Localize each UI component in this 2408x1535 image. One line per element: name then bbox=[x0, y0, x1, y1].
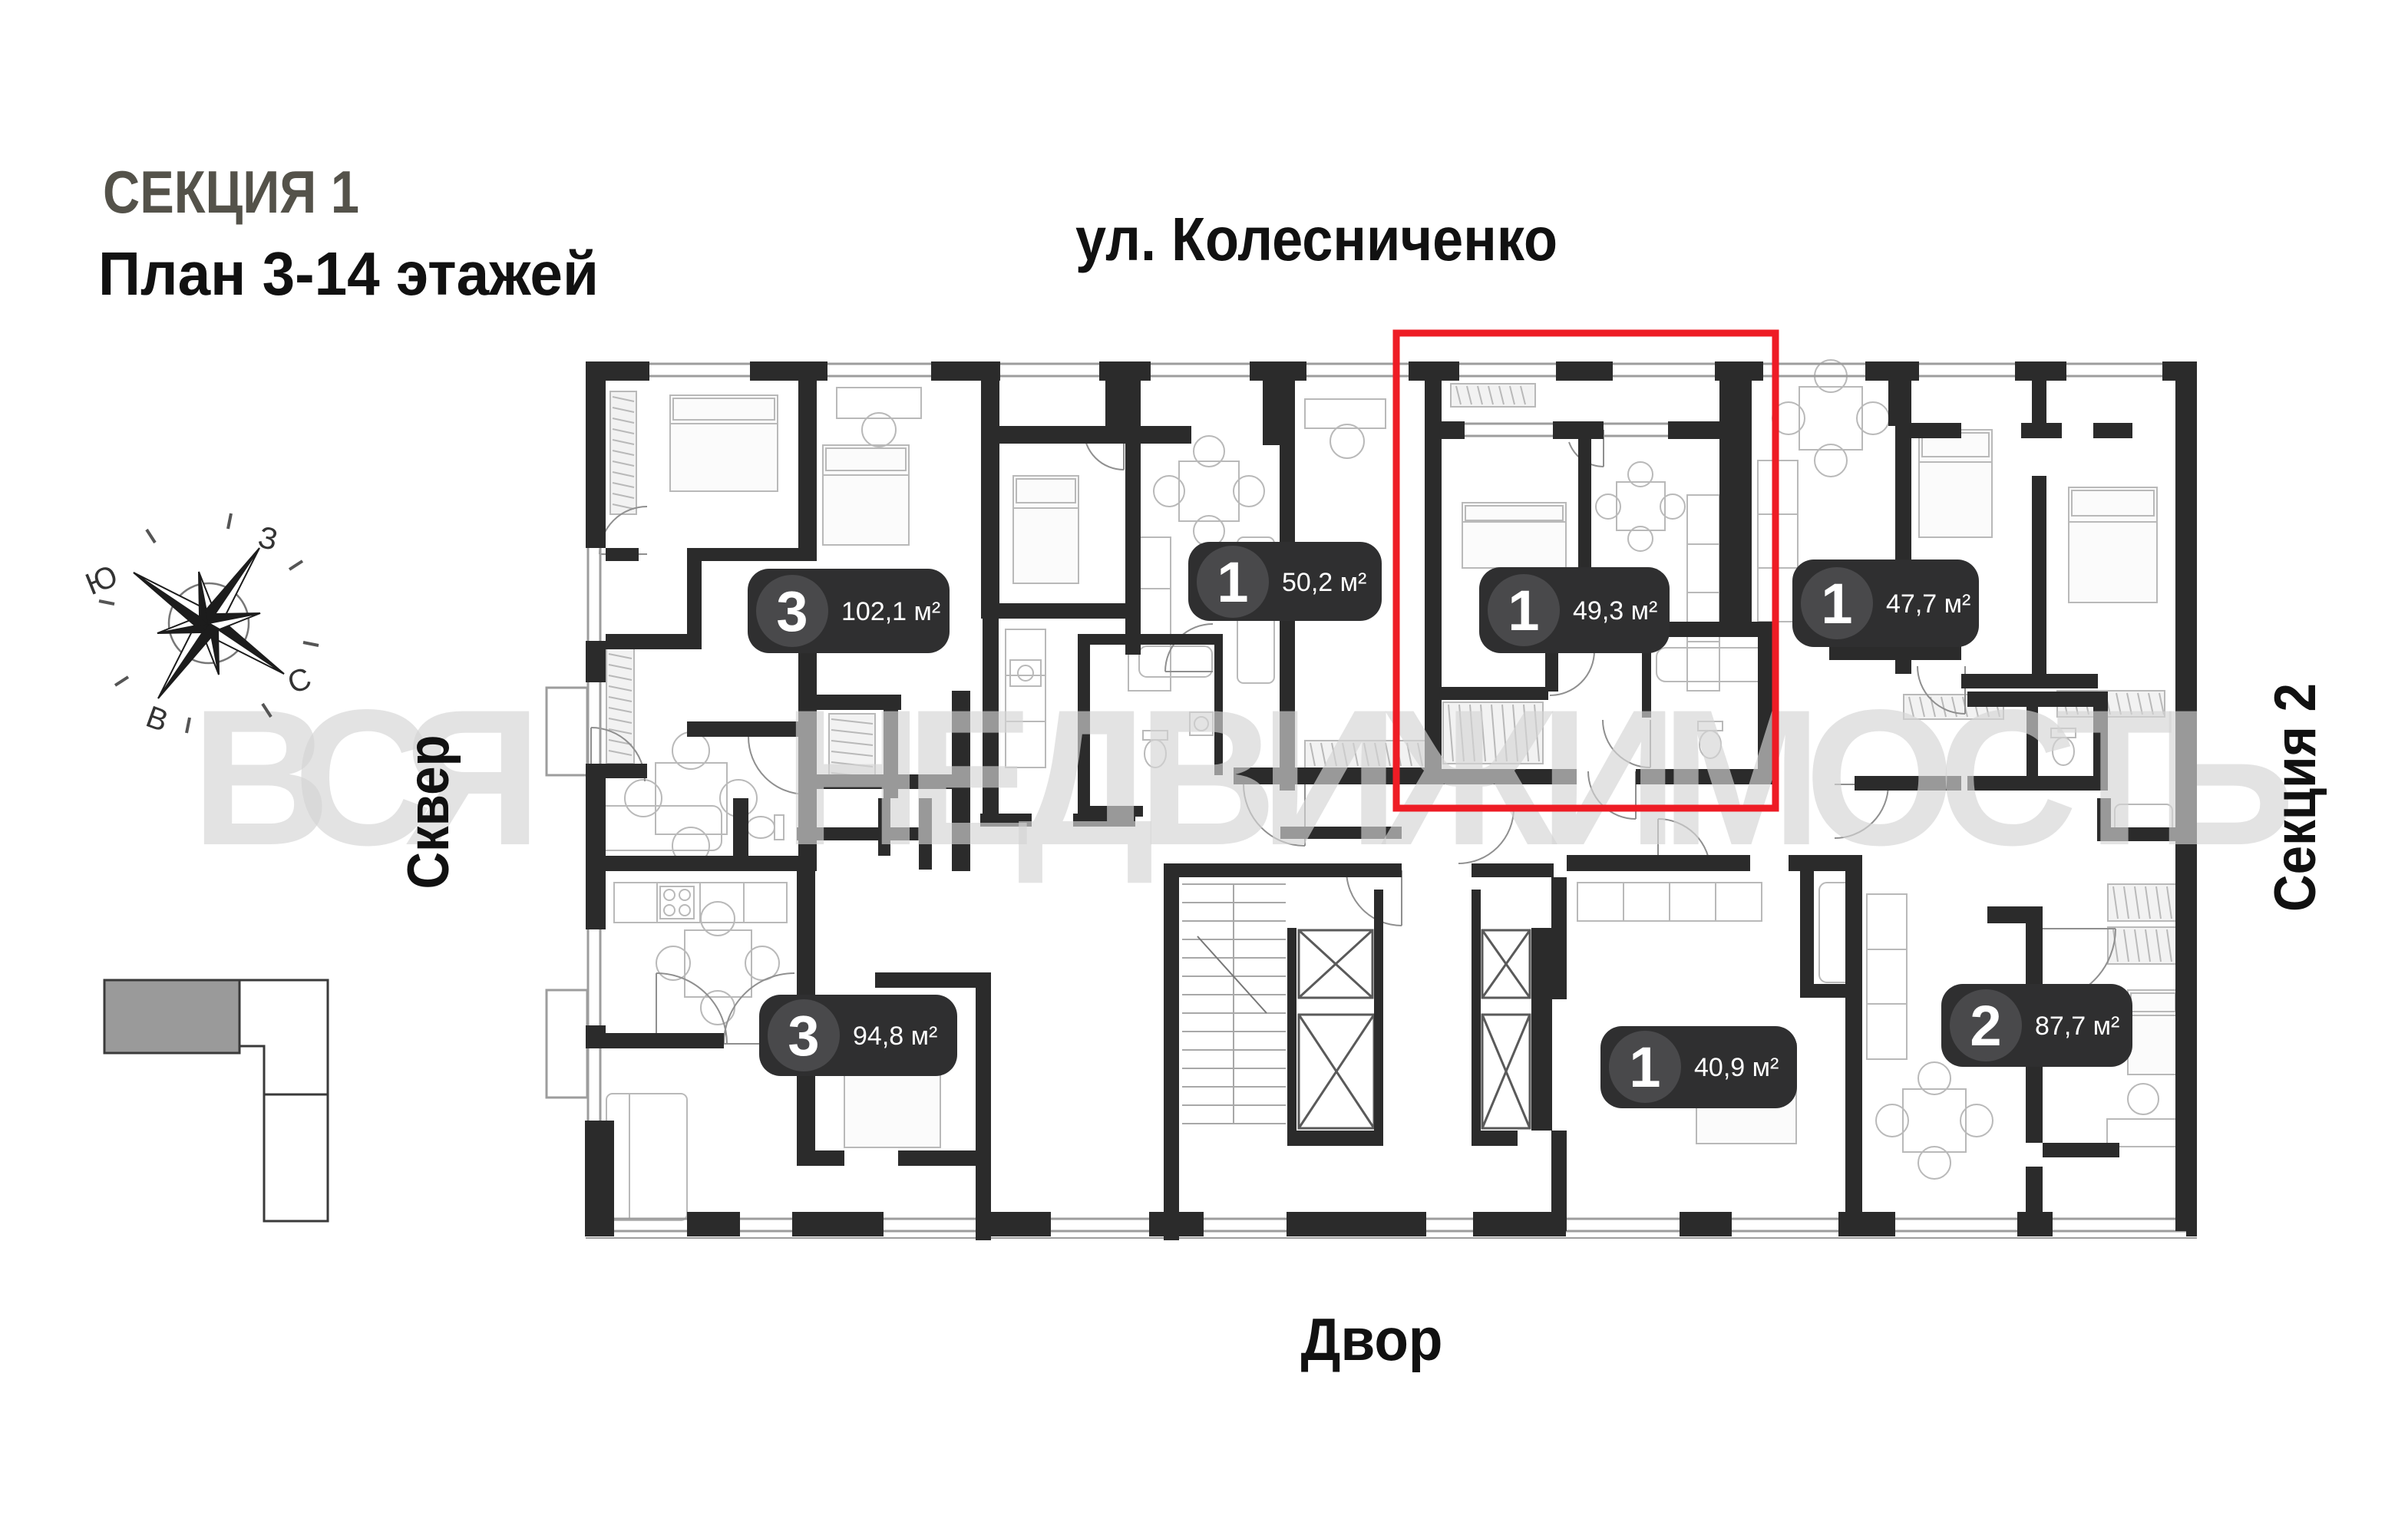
svg-text:94,8 м²: 94,8 м² bbox=[853, 1022, 937, 1051]
svg-text:1: 1 bbox=[1508, 579, 1539, 642]
svg-text:План 3-14 этажей: План 3-14 этажей bbox=[98, 239, 599, 308]
svg-text:3: 3 bbox=[788, 1004, 819, 1068]
svg-text:Сквер: Сквер bbox=[396, 735, 461, 890]
svg-text:Двор: Двор bbox=[1301, 1306, 1443, 1373]
svg-text:ВСЯ: ВСЯ bbox=[191, 670, 542, 886]
svg-text:ул. Колесниченко: ул. Колесниченко bbox=[1075, 205, 1557, 273]
svg-text:1: 1 bbox=[1821, 572, 1852, 635]
svg-text:49,3 м²: 49,3 м² bbox=[1573, 596, 1657, 626]
svg-text:102,1 м²: 102,1 м² bbox=[841, 597, 940, 626]
svg-text:Ю: Ю bbox=[81, 559, 122, 602]
svg-text:В: В bbox=[142, 700, 173, 738]
svg-text:СЕКЦИЯ 1: СЕКЦИЯ 1 bbox=[103, 158, 359, 226]
svg-text:1: 1 bbox=[1217, 550, 1248, 614]
svg-text:1: 1 bbox=[1629, 1035, 1660, 1099]
svg-text:2: 2 bbox=[1970, 994, 2001, 1058]
svg-text:87,7 м²: 87,7 м² bbox=[2035, 1012, 2119, 1041]
svg-text:40,9 м²: 40,9 м² bbox=[1694, 1053, 1779, 1082]
svg-text:НЕДВИЖИМОСТЬ: НЕДВИЖИМОСТЬ bbox=[783, 670, 2295, 886]
svg-text:Секция 2: Секция 2 bbox=[2263, 683, 2328, 912]
svg-text:З: З bbox=[255, 520, 281, 558]
svg-text:3: 3 bbox=[776, 579, 808, 643]
svg-text:50,2 м²: 50,2 м² bbox=[1282, 568, 1366, 597]
svg-text:47,7 м²: 47,7 м² bbox=[1886, 589, 1970, 619]
